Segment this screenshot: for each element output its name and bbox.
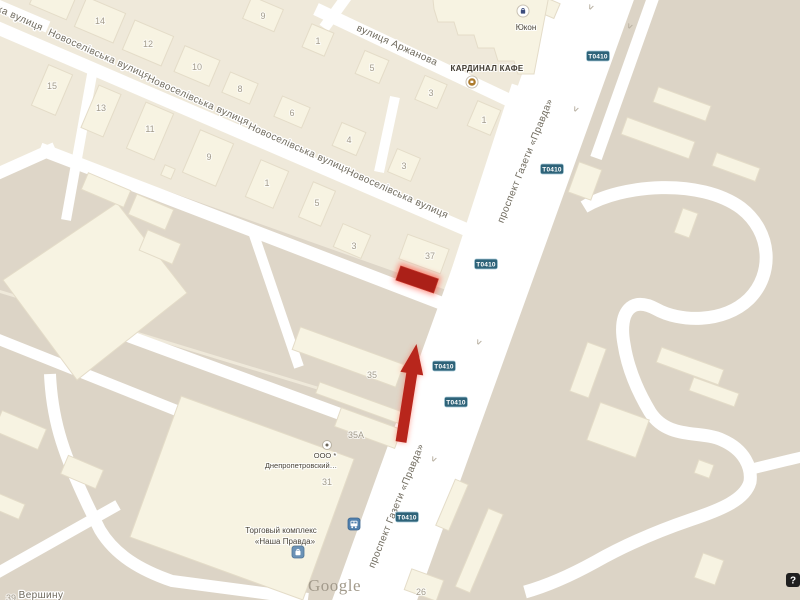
svg-text:9: 9	[260, 11, 265, 21]
svg-text:31: 31	[322, 477, 332, 487]
shopping-mall-icon[interactable]	[292, 546, 304, 558]
poi-label-mall-1[interactable]: Торговый комплекс	[245, 526, 317, 535]
svg-text:35А: 35А	[348, 430, 364, 440]
svg-text:3: 3	[351, 241, 356, 251]
svg-text:T0410: T0410	[588, 53, 608, 60]
bus-stop-icon[interactable]	[348, 518, 360, 530]
svg-text:T0410: T0410	[476, 261, 496, 268]
svg-text:11: 11	[145, 124, 154, 134]
svg-text:1: 1	[264, 178, 269, 188]
svg-text:37: 37	[425, 251, 435, 261]
svg-text:T0410: T0410	[434, 363, 454, 370]
svg-text:T0410: T0410	[446, 399, 466, 406]
cafe-icon[interactable]	[466, 76, 478, 88]
svg-text:15: 15	[47, 81, 57, 91]
svg-text:35: 35	[367, 370, 377, 380]
svg-text:13: 13	[96, 103, 106, 113]
svg-text:T0410: T0410	[542, 166, 562, 173]
svg-text:3: 3	[401, 161, 406, 171]
poi-label-yukon[interactable]: Юкон	[516, 23, 537, 32]
svg-text:12: 12	[143, 39, 153, 49]
svg-text:10: 10	[192, 62, 202, 72]
svg-text:26: 26	[416, 587, 426, 597]
svg-text:?: ?	[790, 576, 796, 587]
svg-text:14: 14	[95, 16, 105, 26]
svg-text:5: 5	[314, 198, 319, 208]
svg-text:8: 8	[237, 84, 242, 94]
svg-text:4: 4	[346, 135, 351, 145]
google-logo[interactable]: Google	[308, 576, 361, 595]
poi-label-company-1[interactable]: ООО *	[314, 451, 337, 460]
shop-icon[interactable]	[517, 5, 529, 17]
svg-text:1: 1	[481, 115, 486, 125]
svg-text:39: 39	[6, 593, 16, 600]
company-icon[interactable]	[323, 441, 332, 450]
svg-text:1: 1	[315, 36, 320, 46]
map-canvas[interactable]: >>>>> 9141210861513119115314353373535А31…	[0, 0, 800, 600]
poi-label-cafe[interactable]: КАРДИНАЛ КАФЕ	[451, 64, 524, 73]
svg-text:3: 3	[428, 88, 433, 98]
svg-text:Вершину: Вершину	[19, 590, 64, 600]
svg-text:T0410: T0410	[397, 514, 417, 521]
poi-label-mall-2[interactable]: «Наша Правда»	[255, 537, 316, 546]
help-icon[interactable]: ?	[786, 573, 800, 587]
svg-text:6: 6	[289, 108, 294, 118]
poi-label-company-2[interactable]: Днепропетровский…	[265, 461, 337, 470]
svg-text:5: 5	[369, 63, 374, 73]
svg-text:9: 9	[206, 152, 211, 162]
